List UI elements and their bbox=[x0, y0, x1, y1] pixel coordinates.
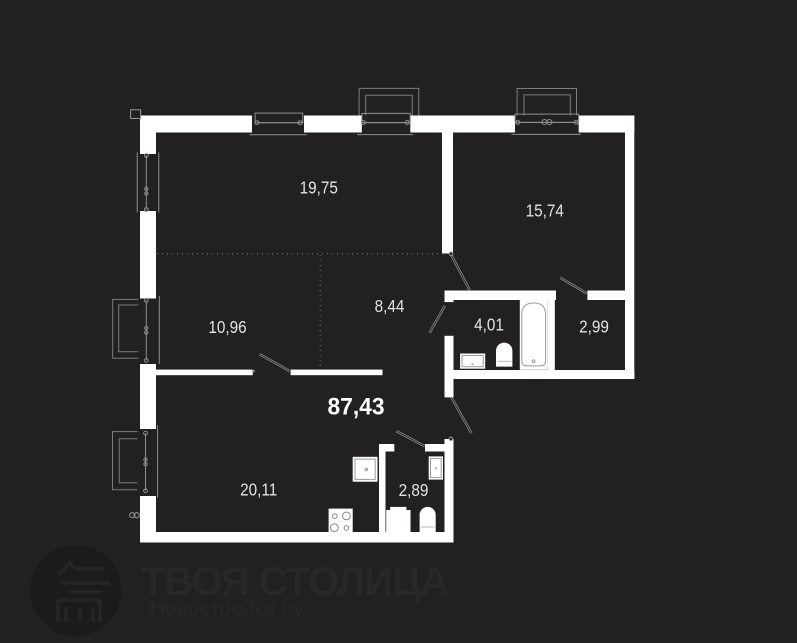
svg-text:10,96: 10,96 bbox=[208, 317, 246, 337]
svg-text:8,44: 8,44 bbox=[375, 296, 405, 316]
svg-text:87,43: 87,43 bbox=[327, 393, 384, 420]
svg-text:19,75: 19,75 bbox=[300, 177, 338, 197]
svg-text:15,74: 15,74 bbox=[526, 201, 564, 221]
svg-text:4,01: 4,01 bbox=[474, 314, 504, 334]
svg-text:Новостройки.by: Новостройки.by bbox=[150, 597, 304, 620]
svg-text:2,89: 2,89 bbox=[399, 480, 429, 500]
svg-text:20,11: 20,11 bbox=[240, 480, 277, 500]
svg-text:2,99: 2,99 bbox=[579, 316, 609, 336]
